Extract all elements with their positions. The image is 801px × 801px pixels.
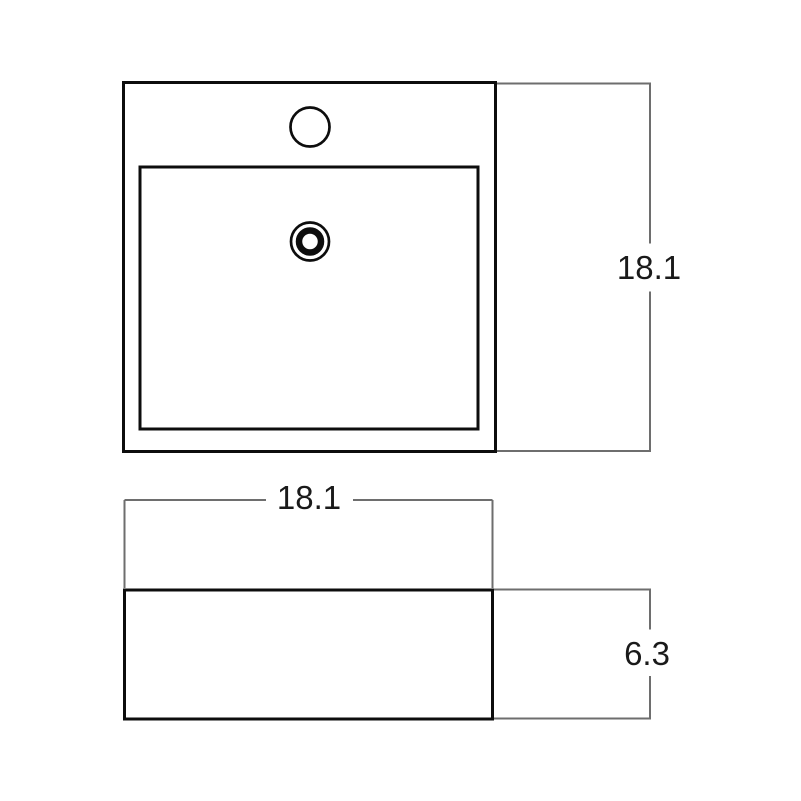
faucet-hole	[291, 108, 330, 147]
sink-front-profile	[125, 590, 493, 719]
sink-top-view	[124, 83, 496, 452]
height-dimension-label: 6.3	[624, 635, 670, 672]
sink-dimension-diagram: 18.1 18.1 6.3	[0, 0, 801, 801]
sink-basin	[140, 167, 478, 429]
depth-dimension-label: 18.1	[617, 249, 681, 286]
front-view-width-dimension: 18.1	[125, 479, 493, 588]
drain-inner-ring	[299, 231, 321, 253]
sink-outer-rim	[124, 83, 496, 452]
top-view-depth-dimension: 18.1	[497, 84, 681, 452]
sink-front-view	[125, 590, 493, 719]
dimension-drawing-canvas: 18.1 18.1 6.3	[0, 0, 801, 801]
width-dimension-label: 18.1	[277, 479, 341, 516]
front-view-height-dimension: 6.3	[494, 590, 670, 719]
